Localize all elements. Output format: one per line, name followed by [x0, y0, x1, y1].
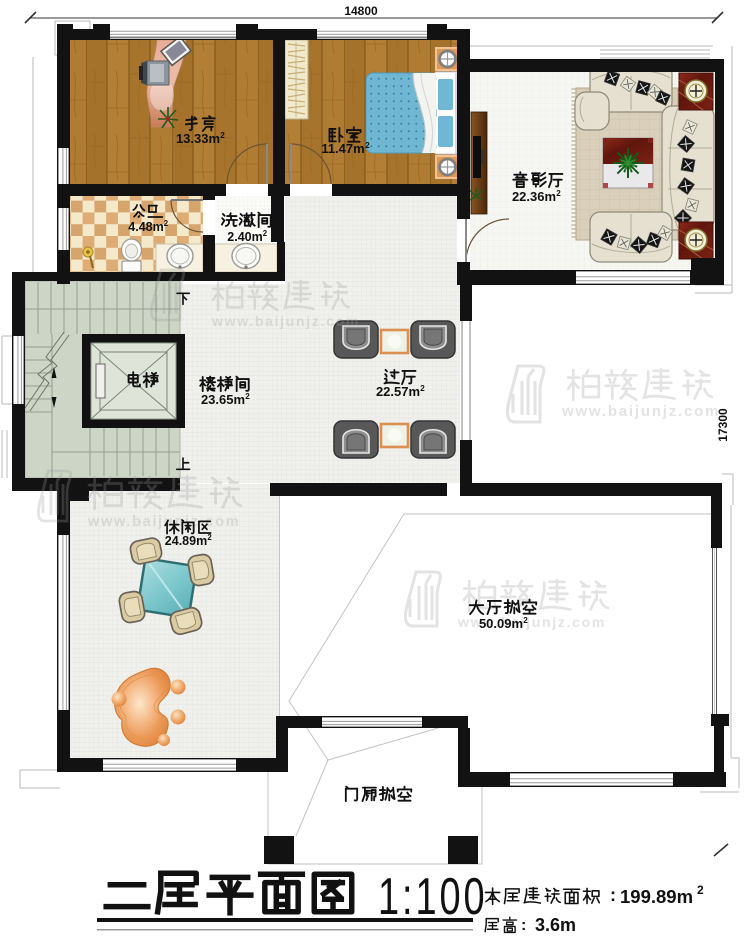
- svg-text:3.6m: 3.6m: [535, 915, 576, 935]
- svg-text:2.40m: 2.40m: [227, 230, 262, 244]
- svg-text:2: 2: [697, 883, 704, 897]
- svg-text:11.47m: 11.47m: [321, 141, 364, 156]
- svg-text:13.33m: 13.33m: [176, 131, 220, 146]
- svg-text:4.48m: 4.48m: [128, 220, 163, 234]
- svg-text:2: 2: [164, 219, 169, 228]
- svg-text:1:100: 1:100: [378, 867, 488, 925]
- svg-text:2: 2: [220, 131, 225, 140]
- svg-text::: :: [521, 917, 526, 934]
- svg-text:www.baijunjz.com: www.baijunjz.com: [87, 514, 240, 530]
- svg-text:www.baijunjz.com: www.baijunjz.com: [561, 403, 720, 420]
- svg-text:199.89m: 199.89m: [620, 886, 693, 907]
- svg-text:22.57m: 22.57m: [376, 384, 420, 399]
- svg-text::: :: [610, 885, 616, 905]
- svg-text:14800: 14800: [344, 4, 378, 18]
- svg-text:2: 2: [556, 189, 561, 198]
- svg-text:2: 2: [523, 616, 528, 625]
- svg-text:22.36m: 22.36m: [512, 189, 556, 204]
- svg-text:17300: 17300: [716, 408, 730, 442]
- svg-text:www.baijunjz.com: www.baijunjz.com: [211, 313, 360, 329]
- svg-text:23.65m: 23.65m: [201, 392, 245, 407]
- svg-text:2: 2: [207, 533, 212, 542]
- svg-text:2: 2: [365, 141, 370, 150]
- svg-text:2: 2: [420, 384, 425, 393]
- svg-text:50.09m: 50.09m: [479, 616, 523, 631]
- svg-text:2: 2: [263, 229, 268, 238]
- svg-text:2: 2: [245, 392, 250, 401]
- svg-text:24.89m: 24.89m: [165, 534, 207, 548]
